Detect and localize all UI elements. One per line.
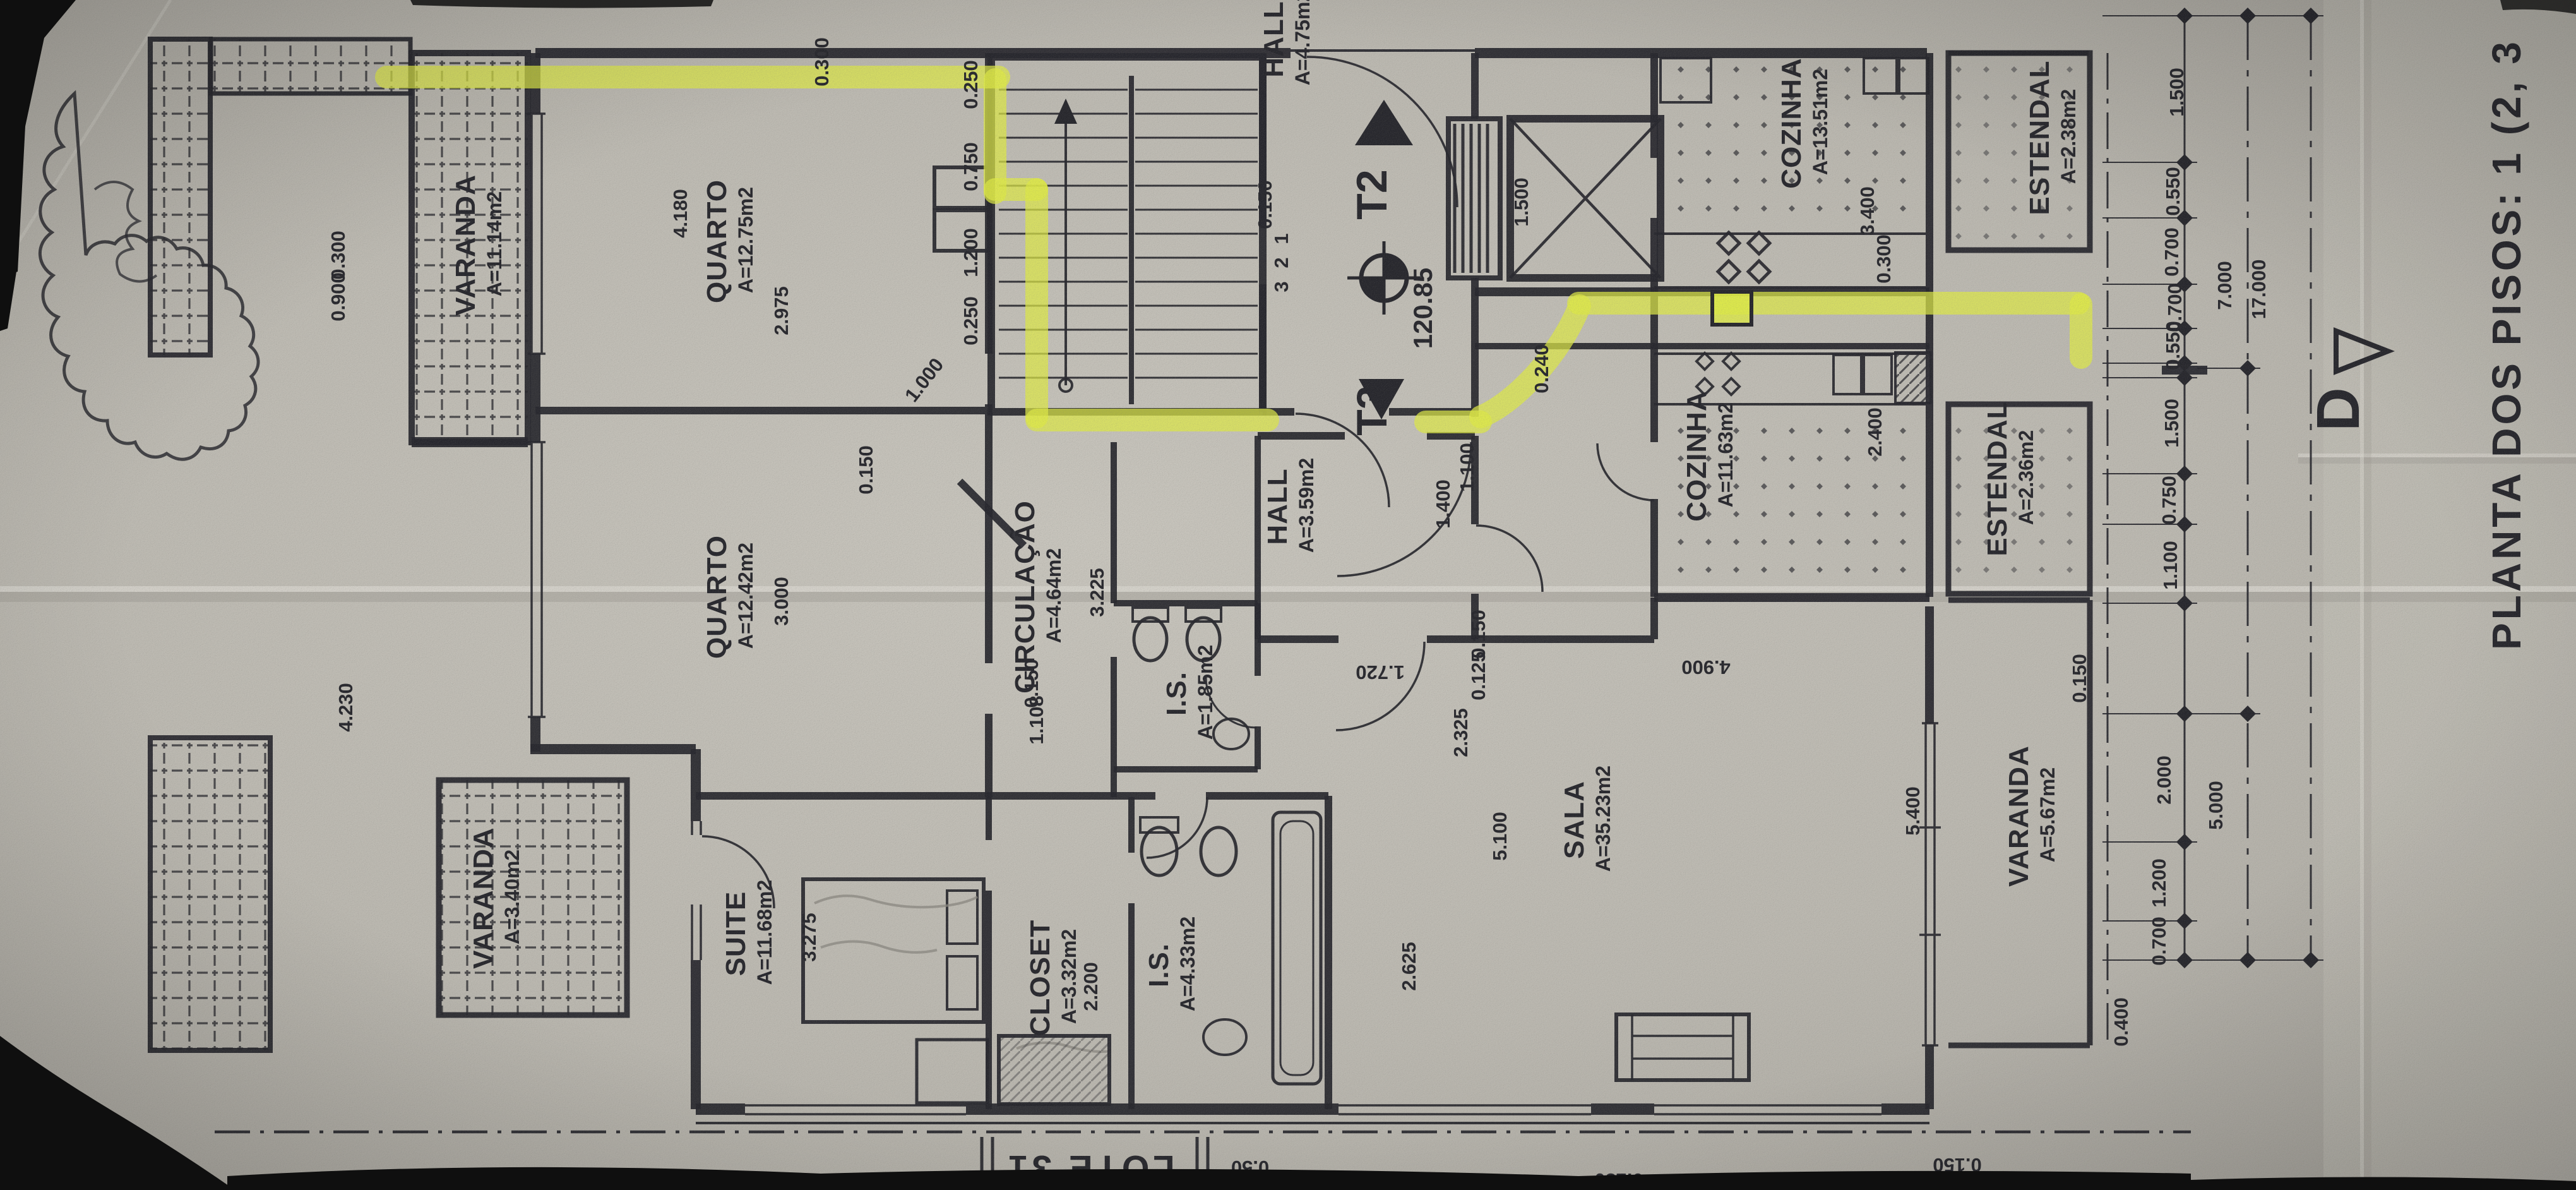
- vignette: [0, 0, 2576, 1190]
- floorplan-photo: T2 T3 120.85 D PLANTA DOS PISOS: 1 (2, 3…: [0, 0, 2576, 1190]
